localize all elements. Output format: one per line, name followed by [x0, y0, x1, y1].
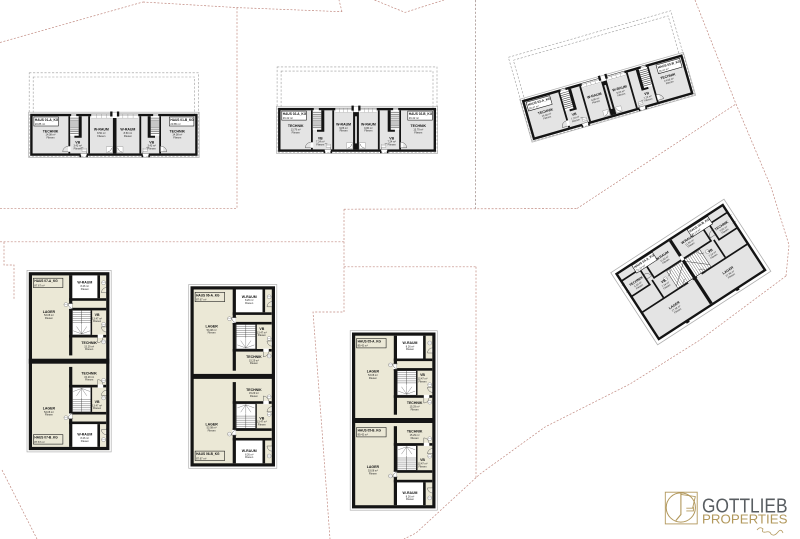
svg-text:87.67 m²: 87.67 m²: [34, 440, 44, 444]
svg-text:HAUS 01-A_KG: HAUS 01-A_KG: [35, 118, 59, 122]
svg-text:W-RAUM: W-RAUM: [77, 433, 92, 437]
svg-text:Fliesen: Fliesen: [97, 135, 106, 138]
svg-text:HAUS 02-B_KG: HAUS 02-B_KG: [409, 112, 433, 116]
svg-text:Fliesen: Fliesen: [85, 348, 94, 351]
svg-text:Fliesen: Fliesen: [388, 144, 397, 147]
svg-text:Fliesen: Fliesen: [258, 334, 267, 337]
svg-text:Fliesen: Fliesen: [340, 130, 349, 133]
svg-text:Fliesen: Fliesen: [258, 424, 267, 427]
svg-text:Fliesen: Fliesen: [418, 465, 427, 468]
svg-text:W-RAUM: W-RAUM: [336, 123, 351, 127]
svg-text:TECHNIK: TECHNIK: [407, 430, 423, 434]
svg-text:LAGER: LAGER: [205, 325, 218, 329]
svg-text:W-RAUM: W-RAUM: [403, 341, 418, 345]
svg-text:PROPERTIES: PROPERTIES: [702, 512, 788, 527]
svg-text:TECHNIK: TECHNIK: [170, 129, 186, 133]
svg-text:89.42 m²: 89.42 m²: [358, 344, 368, 348]
svg-text:TECHNIK: TECHNIK: [407, 401, 423, 405]
svg-text:Fliesen: Fliesen: [250, 395, 259, 398]
svg-text:Fliesen: Fliesen: [85, 379, 94, 382]
svg-text:Fliesen: Fliesen: [292, 131, 301, 134]
svg-text:HAUS 07-B_KG: HAUS 07-B_KG: [34, 436, 58, 440]
svg-text:TECHNIK: TECHNIK: [288, 124, 304, 128]
svg-text:87.67 m²: 87.67 m²: [34, 283, 44, 287]
svg-text:VB: VB: [95, 313, 100, 317]
svg-text:Fliesen: Fliesen: [45, 317, 54, 320]
svg-text:TECHNIK: TECHNIK: [246, 388, 262, 392]
svg-text:Fliesen: Fliesen: [245, 456, 254, 459]
svg-text:VB: VB: [75, 140, 80, 144]
svg-text:TECHNIK: TECHNIK: [81, 341, 97, 345]
svg-text:W-RAUM: W-RAUM: [94, 128, 109, 132]
svg-text:LAGER: LAGER: [43, 310, 56, 314]
svg-text:TECHNIK: TECHNIK: [411, 124, 427, 128]
svg-text:Fliesen: Fliesen: [74, 148, 83, 151]
svg-text:TECHNIK: TECHNIK: [246, 355, 262, 359]
svg-text:VB: VB: [259, 327, 264, 331]
svg-text:Fliesen: Fliesen: [369, 377, 378, 380]
svg-text:Fliesen: Fliesen: [173, 137, 182, 140]
svg-text:W-RAUM: W-RAUM: [242, 295, 257, 299]
svg-text:Fliesen: Fliesen: [208, 332, 217, 335]
svg-text:Fliesen: Fliesen: [406, 498, 415, 501]
svg-text:TECHNIK: TECHNIK: [43, 129, 59, 133]
svg-text:Fliesen: Fliesen: [93, 407, 102, 410]
svg-text:Fliesen: Fliesen: [45, 414, 54, 417]
svg-text:HAUS 05-B_KG: HAUS 05-B_KG: [358, 429, 382, 433]
svg-text:Fliesen: Fliesen: [406, 348, 415, 351]
svg-text:87.67 m²: 87.67 m²: [196, 298, 206, 302]
svg-text:Fliesen: Fliesen: [411, 408, 420, 411]
svg-text:HAUS 05-A_KG: HAUS 05-A_KG: [358, 340, 382, 344]
svg-text:LAGER: LAGER: [205, 422, 218, 426]
svg-text:Fliesen: Fliesen: [418, 380, 427, 383]
svg-text:Fliesen: Fliesen: [81, 288, 90, 291]
svg-text:LAGER: LAGER: [367, 465, 380, 469]
svg-text:W-RAUM: W-RAUM: [403, 491, 418, 495]
svg-text:VB: VB: [259, 416, 264, 420]
svg-text:HAUS 07-A_KG: HAUS 07-A_KG: [34, 279, 58, 283]
svg-text:20.85 m²: 20.85 m²: [170, 122, 180, 126]
svg-text:89.42 m²: 89.42 m²: [358, 433, 368, 437]
svg-text:20.85 m²: 20.85 m²: [35, 122, 45, 126]
svg-text:LAGER: LAGER: [43, 407, 56, 411]
svg-text:HAUS 06-A_KG: HAUS 06-A_KG: [196, 293, 220, 297]
svg-text:W-RAUM: W-RAUM: [120, 128, 135, 132]
svg-text:HAUS 01-B_KG: HAUS 01-B_KG: [170, 118, 194, 122]
svg-text:HAUS 02-A_KG: HAUS 02-A_KG: [283, 112, 307, 116]
svg-text:TECHNIK: TECHNIK: [81, 371, 97, 375]
svg-text:VB: VB: [389, 136, 394, 140]
svg-text:Fliesen: Fliesen: [369, 472, 378, 475]
svg-text:LAGER: LAGER: [367, 370, 380, 374]
svg-text:26.42 m²: 26.42 m²: [283, 116, 293, 120]
svg-text:VB: VB: [420, 458, 425, 462]
svg-text:VB: VB: [95, 400, 100, 404]
svg-text:Fliesen: Fliesen: [245, 302, 254, 305]
svg-text:Fliesen: Fliesen: [250, 362, 259, 365]
svg-text:W-RAUM: W-RAUM: [242, 449, 257, 453]
svg-text:Fliesen: Fliesen: [124, 135, 133, 138]
svg-text:87.67 m²: 87.67 m²: [196, 456, 206, 460]
svg-text:Fliesen: Fliesen: [81, 440, 90, 443]
svg-text:Fliesen: Fliesen: [208, 430, 217, 433]
svg-text:Fliesen: Fliesen: [46, 137, 55, 140]
svg-text:VB: VB: [318, 136, 323, 140]
svg-text:HAUS 06-B_KG: HAUS 06-B_KG: [196, 452, 220, 456]
svg-text:VB: VB: [149, 140, 154, 144]
svg-text:26.42 m²: 26.42 m²: [409, 116, 419, 120]
svg-text:Fliesen: Fliesen: [93, 320, 102, 323]
svg-text:Fliesen: Fliesen: [148, 148, 157, 151]
svg-text:W-RAUM: W-RAUM: [361, 123, 376, 127]
svg-text:W-RAUM: W-RAUM: [77, 281, 92, 285]
svg-text:Fliesen: Fliesen: [316, 144, 325, 147]
svg-text:Fliesen: Fliesen: [414, 131, 423, 134]
svg-text:Fliesen: Fliesen: [364, 130, 373, 133]
svg-text:VB: VB: [420, 373, 425, 377]
svg-text:Fliesen: Fliesen: [411, 437, 420, 440]
